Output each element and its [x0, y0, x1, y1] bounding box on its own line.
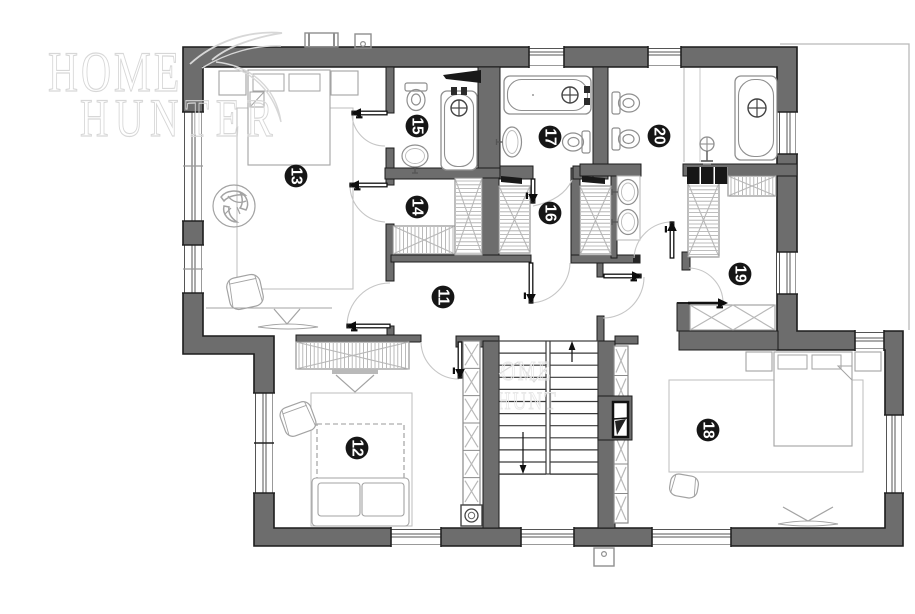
svg-text:HUNTER: HUNTER — [80, 89, 279, 148]
svg-text:16: 16 — [542, 204, 559, 222]
svg-text:18: 18 — [700, 421, 717, 439]
svg-text:14: 14 — [409, 198, 426, 216]
svg-text:HUNT: HUNT — [497, 386, 558, 414]
svg-text:17: 17 — [542, 128, 559, 145]
svg-text:11: 11 — [435, 289, 452, 306]
svg-text:19: 19 — [732, 265, 749, 283]
svg-text:12: 12 — [349, 439, 366, 456]
svg-text:15: 15 — [409, 117, 426, 135]
svg-text:20: 20 — [651, 127, 668, 144]
svg-text:13: 13 — [288, 167, 305, 185]
